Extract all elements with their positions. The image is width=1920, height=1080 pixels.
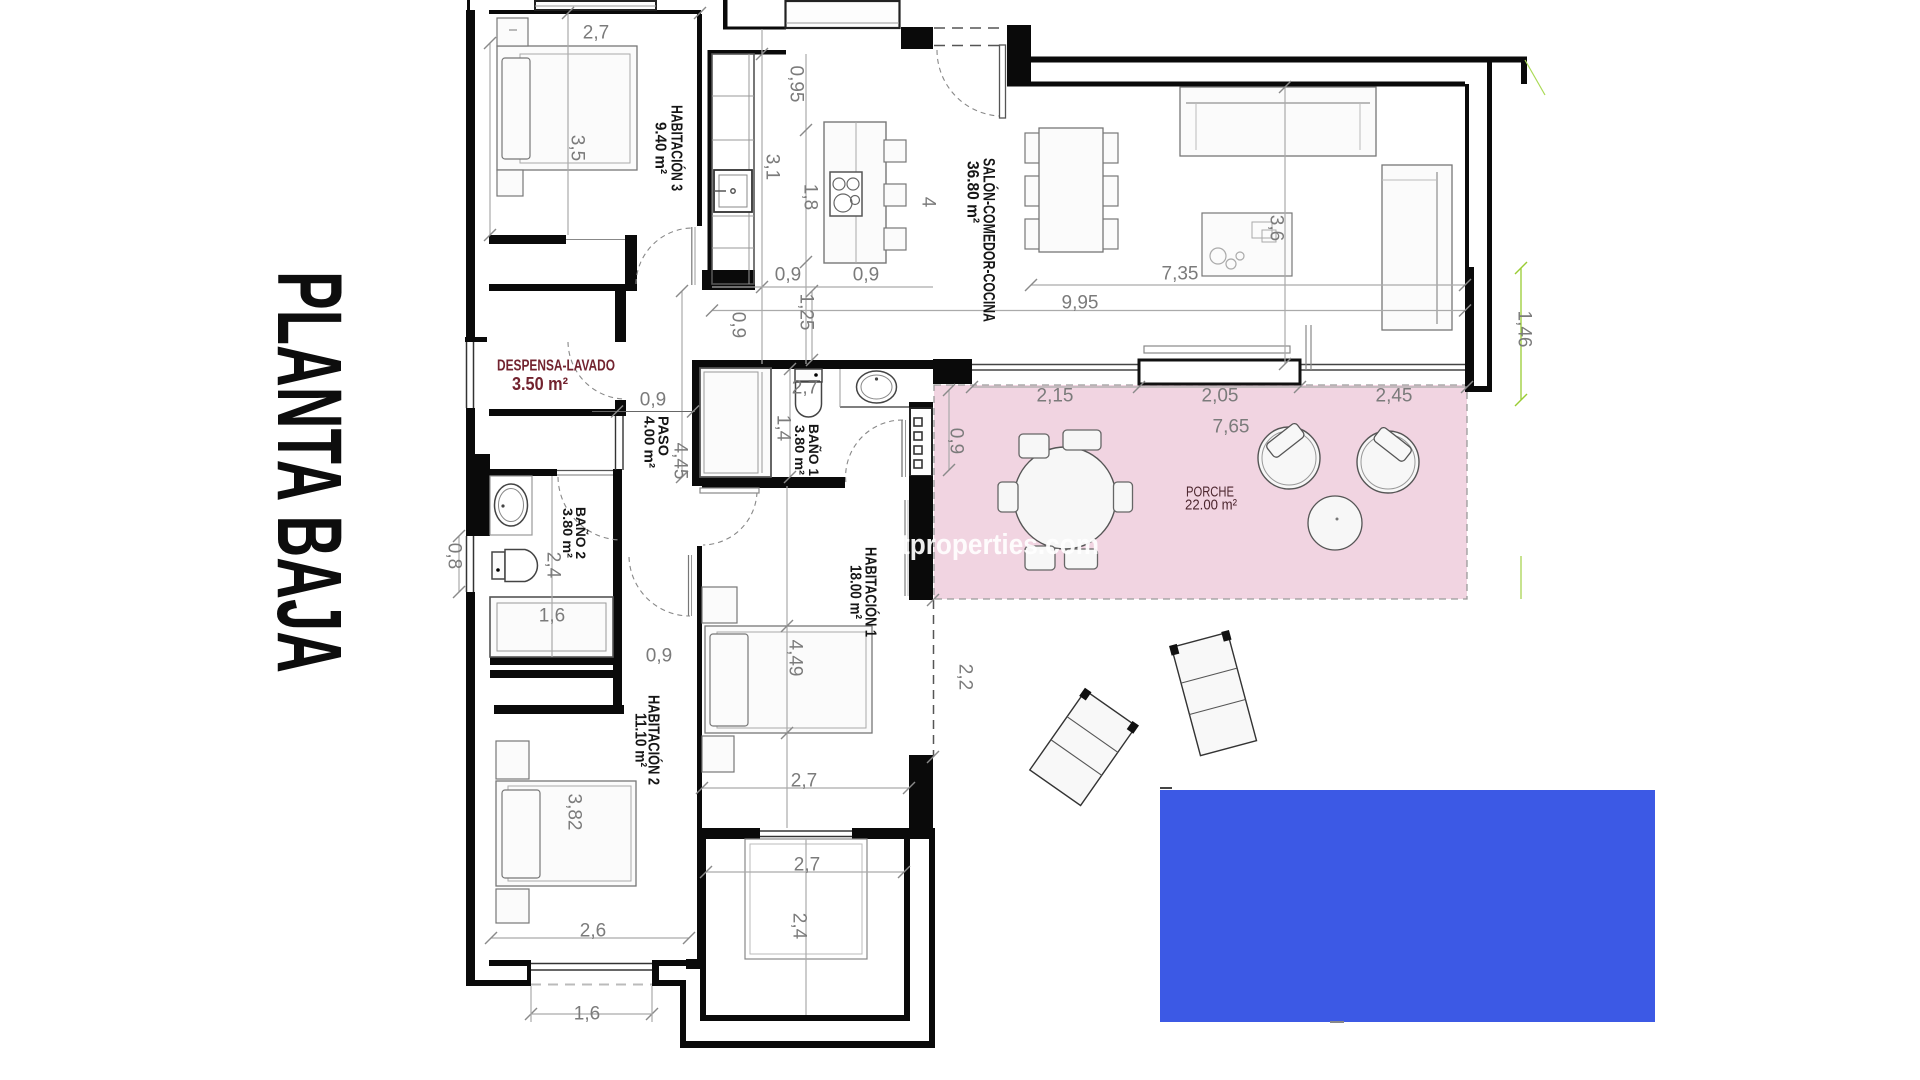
- svg-text:3,82: 3,82: [564, 794, 585, 831]
- svg-text:2,7: 2,7: [583, 23, 609, 44]
- svg-text:4,45: 4,45: [670, 443, 691, 480]
- svg-text:2,7: 2,7: [794, 855, 820, 876]
- svg-text:0,95: 0,95: [786, 66, 807, 103]
- svg-text:1,6: 1,6: [574, 1004, 600, 1025]
- svg-text:2,7: 2,7: [791, 771, 817, 792]
- svg-text:0,9: 0,9: [946, 428, 967, 454]
- svg-text:22.00 m²: 22.00 m²: [1185, 497, 1237, 514]
- svg-text:3,5: 3,5: [567, 135, 588, 161]
- svg-text:9.40 m²: 9.40 m²: [652, 122, 669, 174]
- svg-text:3.80 m²: 3.80 m²: [792, 425, 808, 475]
- svg-text:36.80 m²: 36.80 m²: [964, 161, 983, 223]
- svg-text:3,1: 3,1: [762, 154, 783, 180]
- svg-text:1,4: 1,4: [773, 415, 794, 442]
- svg-text:tproperties.com: tproperties.com: [901, 529, 1099, 561]
- svg-text:18.00 m²: 18.00 m²: [847, 565, 864, 619]
- svg-text:PLANTA BAJA: PLANTA BAJA: [258, 271, 360, 673]
- svg-text:7,35: 7,35: [1162, 264, 1199, 285]
- svg-text:0,9: 0,9: [640, 390, 666, 411]
- svg-text:DESPENSA-LAVADO: DESPENSA-LAVADO: [497, 358, 615, 375]
- svg-text:3.80 m²: 3.80 m²: [560, 508, 576, 558]
- svg-text:4: 4: [918, 197, 939, 208]
- svg-text:1,8: 1,8: [800, 184, 821, 210]
- svg-text:0,9: 0,9: [775, 265, 801, 286]
- svg-text:0,9: 0,9: [853, 265, 879, 286]
- svg-text:1,6: 1,6: [539, 606, 565, 627]
- svg-text:0,9: 0,9: [646, 646, 672, 667]
- svg-text:0,8: 0,8: [444, 543, 465, 569]
- svg-text:11.10 m²: 11.10 m²: [632, 713, 649, 767]
- svg-text:2,7: 2,7: [792, 378, 818, 399]
- svg-text:HABITACIÓN 3: HABITACIÓN 3: [668, 105, 687, 191]
- svg-text:2,2: 2,2: [955, 664, 976, 690]
- svg-text:1,25: 1,25: [796, 294, 817, 331]
- svg-text:2,45: 2,45: [1376, 386, 1413, 407]
- svg-text:1,46: 1,46: [1514, 311, 1535, 348]
- svg-text:3,6: 3,6: [1266, 215, 1287, 241]
- svg-text:3.50 m²: 3.50 m²: [512, 374, 568, 394]
- svg-text:2,15: 2,15: [1037, 386, 1074, 407]
- svg-text:7,65: 7,65: [1213, 417, 1250, 438]
- svg-text:2,05: 2,05: [1202, 386, 1239, 407]
- svg-text:4.00 m²: 4.00 m²: [641, 416, 658, 468]
- svg-text:0,9: 0,9: [728, 312, 749, 338]
- svg-text:2,4: 2,4: [789, 913, 810, 940]
- svg-text:2,6: 2,6: [580, 921, 606, 942]
- svg-text:9,95: 9,95: [1062, 293, 1099, 314]
- svg-text:4,49: 4,49: [785, 640, 806, 677]
